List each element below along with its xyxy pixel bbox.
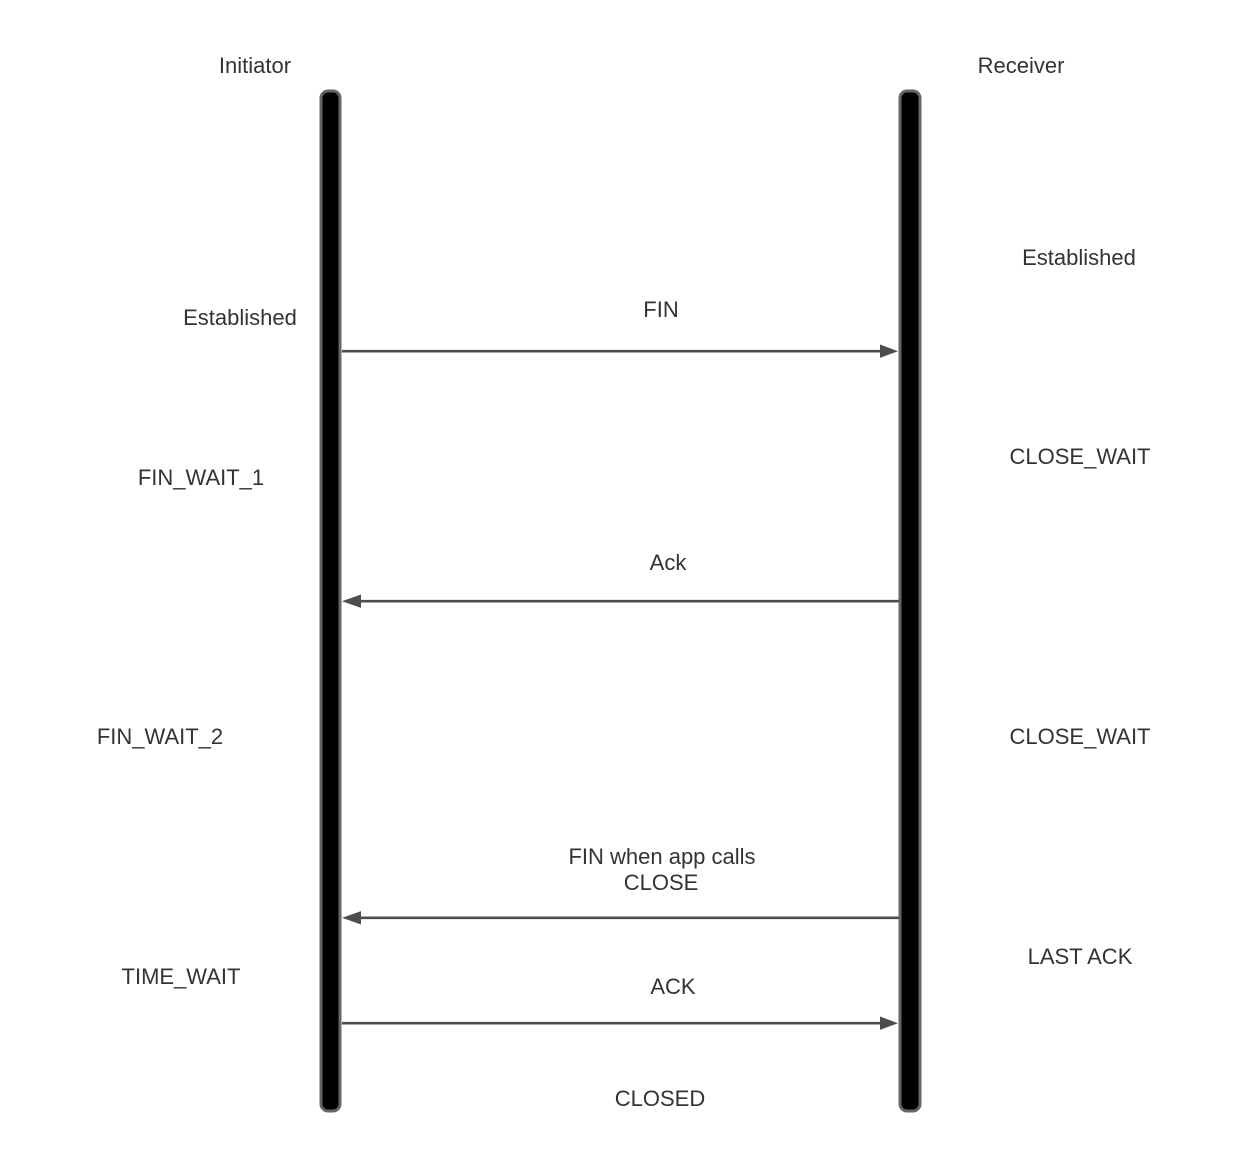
- svg-text:LAST ACK: LAST ACK: [1028, 944, 1133, 969]
- svg-text:CLOSE_WAIT: CLOSE_WAIT: [1010, 444, 1151, 469]
- svg-text:Established: Established: [183, 305, 297, 330]
- svg-text:CLOSE: CLOSE: [624, 870, 699, 895]
- svg-text:Ack: Ack: [650, 550, 688, 575]
- svg-text:TIME_WAIT: TIME_WAIT: [122, 964, 241, 989]
- svg-text:CLOSE_WAIT: CLOSE_WAIT: [1010, 724, 1151, 749]
- svg-text:CLOSED: CLOSED: [615, 1086, 705, 1111]
- svg-text:ACK: ACK: [650, 974, 696, 999]
- svg-text:FIN_WAIT_1: FIN_WAIT_1: [138, 465, 264, 490]
- svg-text:Initiator: Initiator: [219, 53, 291, 78]
- svg-text:Established: Established: [1022, 245, 1136, 270]
- svg-text:FIN_WAIT_2: FIN_WAIT_2: [97, 724, 223, 749]
- svg-text:FIN when app calls: FIN when app calls: [568, 844, 755, 869]
- svg-text:Receiver: Receiver: [978, 53, 1065, 78]
- svg-text:FIN: FIN: [643, 297, 678, 322]
